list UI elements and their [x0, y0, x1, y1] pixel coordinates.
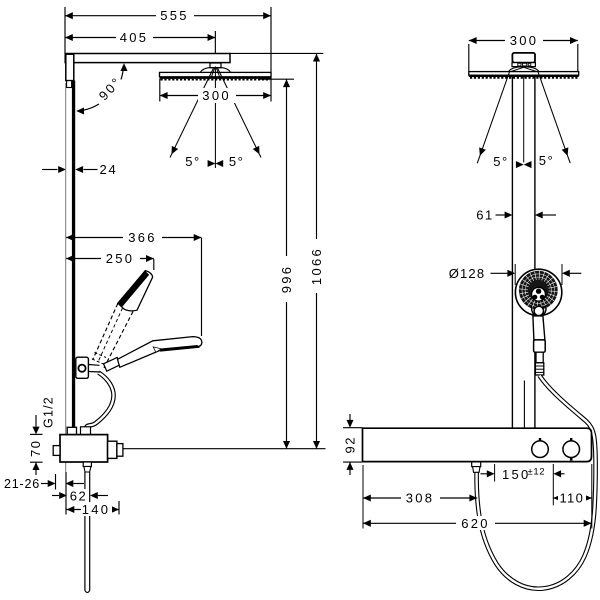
- svg-text:5°: 5°: [539, 153, 554, 168]
- svg-text:±12: ±12: [528, 467, 546, 478]
- svg-text:5°: 5°: [229, 154, 244, 169]
- svg-text:61: 61: [476, 208, 493, 223]
- svg-text:70: 70: [28, 440, 43, 457]
- svg-text:150: 150: [502, 467, 531, 482]
- svg-text:300: 300: [202, 88, 231, 103]
- svg-text:308: 308: [406, 491, 435, 506]
- svg-text:620: 620: [461, 516, 490, 531]
- svg-text:62: 62: [70, 488, 87, 503]
- svg-text:555: 555: [160, 8, 189, 23]
- svg-text:21-26: 21-26: [4, 477, 40, 491]
- svg-text:92: 92: [343, 436, 358, 453]
- svg-text:405: 405: [120, 30, 149, 45]
- svg-text:Ø128: Ø128: [449, 266, 486, 281]
- svg-text:250: 250: [106, 251, 135, 266]
- svg-text:5°: 5°: [185, 154, 200, 169]
- svg-text:110: 110: [559, 491, 584, 506]
- svg-text:G1/2: G1/2: [42, 396, 56, 428]
- svg-text:300: 300: [510, 33, 539, 48]
- svg-text:366: 366: [128, 230, 157, 245]
- svg-text:140: 140: [82, 502, 111, 517]
- svg-text:5°: 5°: [493, 154, 508, 169]
- svg-text:996: 996: [279, 265, 294, 294]
- svg-text:1066: 1066: [309, 247, 324, 285]
- svg-text:24: 24: [99, 162, 117, 177]
